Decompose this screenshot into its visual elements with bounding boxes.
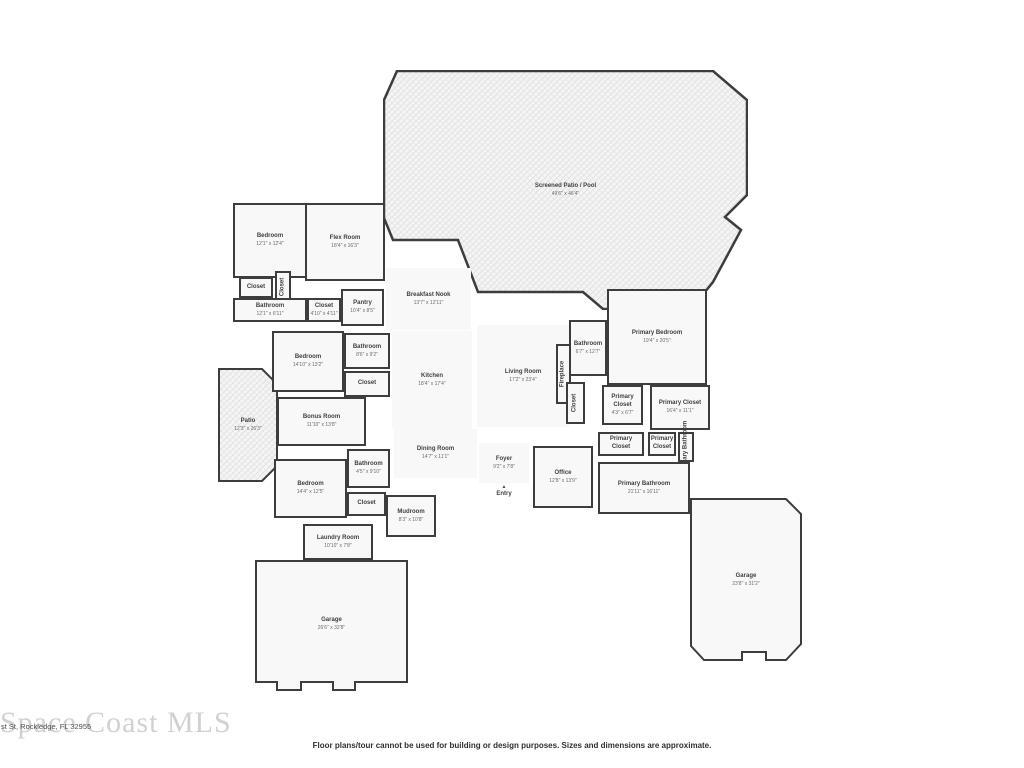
room-dims: 12'1" x 6'11" (256, 311, 283, 318)
room-primary-closet-hall-a: Primary Closet (598, 432, 644, 456)
room-dims: 13'7" x 12'11" (414, 300, 444, 307)
room-patio: Patio12'3" x 26'3" (218, 368, 278, 482)
room-bathroom-mid: Bathroom8'6" x 9'2" (344, 333, 390, 369)
room-name: Closet (315, 303, 333, 311)
room-kitchen: Kitchen18'4" x 17'4" (392, 331, 472, 429)
room-dims: 16'4" x 11'1" (666, 408, 693, 415)
room-name: Bonus Room (303, 414, 340, 422)
room-dims: 18'4" x 17'4" (418, 381, 445, 388)
room-name: Bedroom (297, 481, 323, 489)
room-closet-hall: Closet (566, 382, 585, 424)
room-flex-room: Flex Room18'4" x 16'3" (305, 203, 385, 281)
room-closet-upper-right: Closet4'10" x 4'11" (307, 298, 341, 322)
room-name: Primary Closet (604, 394, 641, 410)
room-dims: 4'10" x 4'11" (310, 311, 337, 318)
room-dims: 49'6" x 46'4" (552, 191, 579, 198)
room-bedroom-upper: Bedroom12'1" x 12'4" (233, 203, 307, 278)
room-bathroom-upper: Bathroom12'1" x 6'11" (233, 298, 307, 322)
room-primary-bedroom: Primary Bedroom19'4" x 20'5" (607, 289, 707, 385)
room-dims: 10'10" x 7'8" (324, 543, 351, 550)
room-dims: 4'3" x 6'7" (612, 410, 634, 417)
room-dims: 14'7" x 11'1" (422, 454, 449, 461)
room-garage-second: Garage23'8" x 31'2" (690, 498, 802, 662)
room-dims: 18'4" x 16'3" (331, 243, 358, 250)
room-name: Primary Closet (659, 400, 701, 408)
room-name: Primary Bathroom (618, 481, 670, 489)
floor-plan: Screened Patio / Pool49'6" x 46'4"Bedroo… (0, 0, 1024, 768)
room-name: Closet (357, 500, 375, 508)
room-dims: 8'6" x 9'2" (356, 352, 378, 359)
room-dims: 17'2" x 23'4" (509, 377, 536, 384)
room-bedroom-lower: Bedroom14'4" x 12'5" (274, 459, 347, 518)
room-name: Office (554, 470, 571, 478)
room-name: Closet (358, 380, 376, 388)
room-primary-closet-hall-b: Primary Closet (648, 432, 676, 456)
room-name: Patio (241, 418, 256, 426)
room-dims: 4'5" x 9'10" (356, 469, 381, 476)
room-name: Garage (736, 573, 757, 581)
room-name: Bathroom (354, 461, 382, 469)
room-bathroom-lower: Bathroom4'5" x 9'10" (347, 449, 390, 488)
room-dims: 11'10" x 13'8" (307, 422, 337, 429)
room-breakfast-nook: Breakfast Nook13'7" x 12'11" (386, 268, 471, 330)
room-name: Primary Bedroom (632, 330, 682, 338)
room-bonus-room: Bonus Room11'10" x 13'8" (277, 397, 366, 446)
room-name: Closet (572, 394, 580, 412)
room-dims: 26'6" x 32'8" (318, 625, 345, 632)
room-dims: 23'8" x 31'2" (732, 581, 759, 588)
room-name: Laundry Room (317, 535, 359, 543)
room-dims: 12'8" x 13'9" (549, 478, 576, 485)
room-pantry: Pantry10'4" x 8'5" (341, 289, 384, 326)
disclaimer-text: Floor plans/tour cannot be used for buil… (0, 741, 1024, 750)
room-bedroom-mid: Bedroom14'10" x 13'2" (272, 331, 344, 392)
room-primary-closet-small: Primary Closet4'3" x 6'7" (602, 385, 643, 425)
room-primary-closet-large: Primary Closet16'4" x 11'1" (650, 385, 710, 430)
room-name: Flex Room (330, 235, 361, 243)
room-name: Bedroom (257, 233, 283, 241)
room-dims: 12'1" x 12'4" (256, 241, 283, 248)
room-name: Pantry (353, 300, 372, 308)
room-laundry-room: Laundry Room10'10" x 7'8" (303, 524, 373, 560)
room-name: Bathroom (574, 341, 602, 349)
room-name: Bathroom (353, 344, 381, 352)
room-name: Bedroom (295, 354, 321, 362)
room-name: Mudroom (397, 509, 424, 517)
room-dims: 9'2" x 7'8" (493, 464, 515, 471)
room-dims: 12'3" x 26'3" (234, 426, 261, 433)
room-name: Garage (321, 617, 342, 625)
room-dims: 10'4" x 8'5" (350, 308, 375, 315)
room-dims: 14'4" x 12'5" (297, 489, 324, 496)
room-name: Closet (247, 284, 265, 292)
room-closet-upper-left: Closet (239, 277, 273, 298)
room-bathroom-right: Bathroom6'7" x 12'7" (569, 320, 607, 376)
room-name: Closet (279, 277, 287, 295)
room-dining-room: Dining Room14'7" x 11'1" (394, 429, 477, 478)
room-name: Kitchen (421, 373, 443, 381)
room-name: Dining Room (417, 446, 454, 454)
room-foyer: Foyer9'2" x 7'8" (479, 443, 529, 483)
room-name: Screened Patio / Pool (535, 183, 596, 191)
room-name: Entry (496, 485, 511, 498)
room-entry: Entry (486, 481, 522, 503)
floor-plan-page: Screened Patio / Pool49'6" x 46'4"Bedroo… (0, 0, 1024, 768)
room-name: Living Room (505, 369, 541, 377)
room-dims: 6'7" x 12'7" (576, 349, 601, 356)
room-name: Bathroom (256, 303, 284, 311)
room-primary-bath-wc: Primary Bathroom (678, 432, 694, 462)
room-closet-lower: Closet (347, 492, 386, 516)
room-name: Primary Closet (650, 436, 674, 452)
room-dims: 14'10" x 13'2" (293, 362, 323, 369)
room-office: Office12'8" x 13'9" (533, 446, 593, 508)
room-garage-main: Garage26'6" x 32'8" (255, 560, 408, 688)
room-primary-bathroom: Primary Bathroom21'11" x 16'11" (598, 462, 690, 514)
room-name: Foyer (496, 456, 512, 464)
room-closet-mid: Closet (344, 371, 390, 397)
listing-address: st St, Rockledge, FL 32955 (1, 722, 91, 731)
room-name: Breakfast Nook (406, 292, 450, 300)
room-dims: 21'11" x 16'11" (628, 489, 660, 496)
room-dims: 19'4" x 20'5" (643, 338, 670, 345)
room-dims: 8'3" x 10'8" (399, 517, 424, 524)
room-name: Primary Closet (600, 436, 642, 452)
room-mudroom: Mudroom8'3" x 10'8" (386, 495, 436, 537)
